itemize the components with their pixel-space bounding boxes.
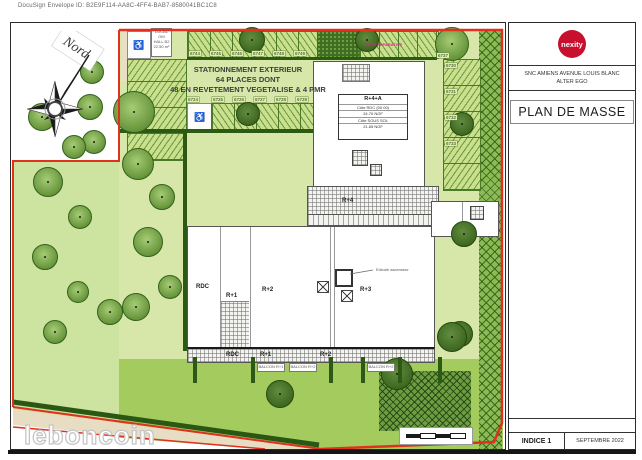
partition (330, 227, 331, 348)
roof-r4: R+4 (307, 186, 439, 216)
parking-note-line1: STATIONNEMENT EXTERIEUR (149, 65, 347, 75)
building-lower: RDC R+1 R+2 R+3 Edicule ascenseur (187, 226, 435, 349)
boundary-annotation: LIMITE SEPARATIVE (363, 42, 402, 47)
tree-icon (266, 380, 294, 408)
stall-number: 6726 (233, 97, 245, 102)
stall-number: 6745 (210, 51, 222, 56)
local-line: 22.50 m² (152, 44, 171, 49)
tree-icon (68, 205, 92, 229)
elevator-shaft (335, 269, 353, 287)
hedge-line (119, 129, 319, 133)
parking-note-line3: 48 EN REVETEMENT VEGETALISE & 4 PMR (149, 85, 347, 95)
floor-label-r1: R+1 (226, 293, 237, 299)
project-line1: SNC AMIENS AVENUE LOUIS BLANC (524, 70, 619, 78)
stall-number: 6728 (275, 97, 287, 102)
tree-icon (67, 281, 89, 303)
floor-label-r2: R+2 (262, 287, 273, 293)
project-line2: ALTER EGO (556, 78, 587, 86)
scale-segment (420, 433, 436, 439)
revision-row: INDICE 1 SEPTEMBRE 2022 (509, 432, 635, 449)
partition (334, 227, 335, 348)
revision-empty-row (509, 418, 635, 432)
stall-number: 6729 (296, 97, 308, 102)
tree-icon (355, 28, 379, 52)
vent-shaft (341, 290, 353, 302)
stall-number: 6733 (445, 141, 457, 146)
compass-rose: Nord (19, 31, 114, 149)
elevator-note: Edicule ascenseur (376, 267, 409, 272)
date-cell: SEPTEMBRE 2022 (565, 433, 635, 449)
parking-note: STATIONNEMENT EXTERIEUR 64 PLACES DONT 4… (149, 65, 347, 95)
wheelchair-icon: ♿ (133, 40, 144, 51)
title-block: nexity SNC AMIENS AVENUE LOUIS BLANC ALT… (508, 22, 636, 450)
hedge-bar (193, 357, 197, 383)
hedge-bar (398, 357, 402, 383)
doc-title: PLAN DE MASSE (510, 100, 633, 124)
shaft-hatch (352, 150, 368, 166)
stall-number: 6724 (187, 97, 199, 102)
scale-segment (436, 434, 450, 438)
stall-number: 6744 (189, 51, 201, 56)
indice-cell: INDICE 1 (509, 433, 565, 449)
local-line: LOCAL OM (152, 29, 171, 39)
terrace-hatch (221, 301, 249, 348)
shaft-hatch (370, 164, 382, 176)
hedge-bar (438, 357, 442, 383)
stall-number: 6737 (437, 53, 449, 58)
nexity-logo-text: nexity (561, 40, 583, 49)
balcony-box: BALCON R+1 (257, 363, 285, 372)
roof-band (307, 214, 435, 226)
shaft-hatch (470, 206, 484, 220)
strip-label-r1: R+1 (260, 352, 271, 358)
document-page: DocuSign Envelope ID: B2E9F114-AA8C-4FF4… (0, 0, 642, 460)
level-title: R+4+A (339, 95, 407, 104)
tree-icon (122, 148, 154, 180)
hedge-block (317, 31, 359, 57)
level-row: 21.65 NGF (339, 123, 407, 129)
logo-section: nexity (509, 23, 635, 66)
tree-icon (97, 299, 123, 325)
left-lawn (13, 161, 119, 423)
nexity-logo: nexity (558, 30, 586, 58)
stall-number: 6731 (445, 89, 457, 94)
leboncoin-watermark: leboncoin (24, 420, 156, 451)
hedge-line (187, 57, 437, 60)
tree-icon (43, 320, 67, 344)
stall-number: 6749 (294, 51, 306, 56)
scale-segment (406, 434, 420, 438)
stall-number: 6746 (231, 51, 243, 56)
scale-bar (399, 427, 473, 445)
roof-label: R+4 (342, 198, 353, 204)
tree-icon (451, 221, 477, 247)
tree-icon (239, 27, 265, 53)
site-plan: 6744 6745 6746 6747 6748 6749 6737 LIMIT… (10, 22, 506, 450)
project-name-section: SNC AMIENS AVENUE LOUIS BLANC ALTER EGO (509, 66, 635, 91)
hedge-bar (329, 357, 333, 383)
hedge-bar (251, 357, 255, 383)
tree-icon (236, 102, 260, 126)
tree-icon (113, 91, 155, 133)
stall-number: 6732 (445, 115, 457, 120)
tree-icon (122, 293, 150, 321)
tree-icon (32, 244, 58, 270)
parking-row-middle (211, 103, 319, 131)
tree-icon (158, 275, 182, 299)
tree-icon (133, 227, 163, 257)
vent-shaft (317, 281, 329, 293)
floor-label-r3: R+3 (360, 287, 371, 293)
floor-label-rdc: RDC (196, 284, 209, 290)
wheelchair-icon: ♿ (194, 112, 205, 123)
stall-number: 6725 (212, 97, 224, 102)
partition (250, 227, 251, 348)
hedge-bar (361, 357, 365, 383)
tree-icon (33, 167, 63, 197)
docusign-envelope-id: DocuSign Envelope ID: B2E9F114-AA8C-4FF4… (18, 3, 217, 9)
level-label-box: R+4+A Côte RDC (00.00) 24.70 NGF Côte SO… (338, 94, 408, 140)
strip-label-rdc: RDC (226, 352, 239, 358)
right-hedge-band (479, 29, 502, 449)
scale-segment (450, 433, 466, 439)
pmr-parking-stall: ♿ (127, 31, 151, 59)
doc-title-section: PLAN DE MASSE (509, 91, 635, 133)
balcony-box: BALCON R+2 (289, 363, 317, 372)
balcony-box: BALCON R+2 (367, 363, 395, 372)
pmr-parking-stall: ♿ (187, 103, 213, 131)
stall-number: 6747 (252, 51, 264, 56)
tree-icon (437, 322, 467, 352)
stall-number: 6748 (273, 51, 285, 56)
stall-number: 6727 (254, 97, 266, 102)
parking-note-line2: 64 PLACES DONT (149, 75, 347, 85)
stall-number: 6730 (445, 63, 457, 68)
tree-icon (149, 184, 175, 210)
title-panel-spacer (509, 133, 635, 418)
local-label-box: LOCAL OM HALL B2 22.50 m² (151, 28, 172, 57)
